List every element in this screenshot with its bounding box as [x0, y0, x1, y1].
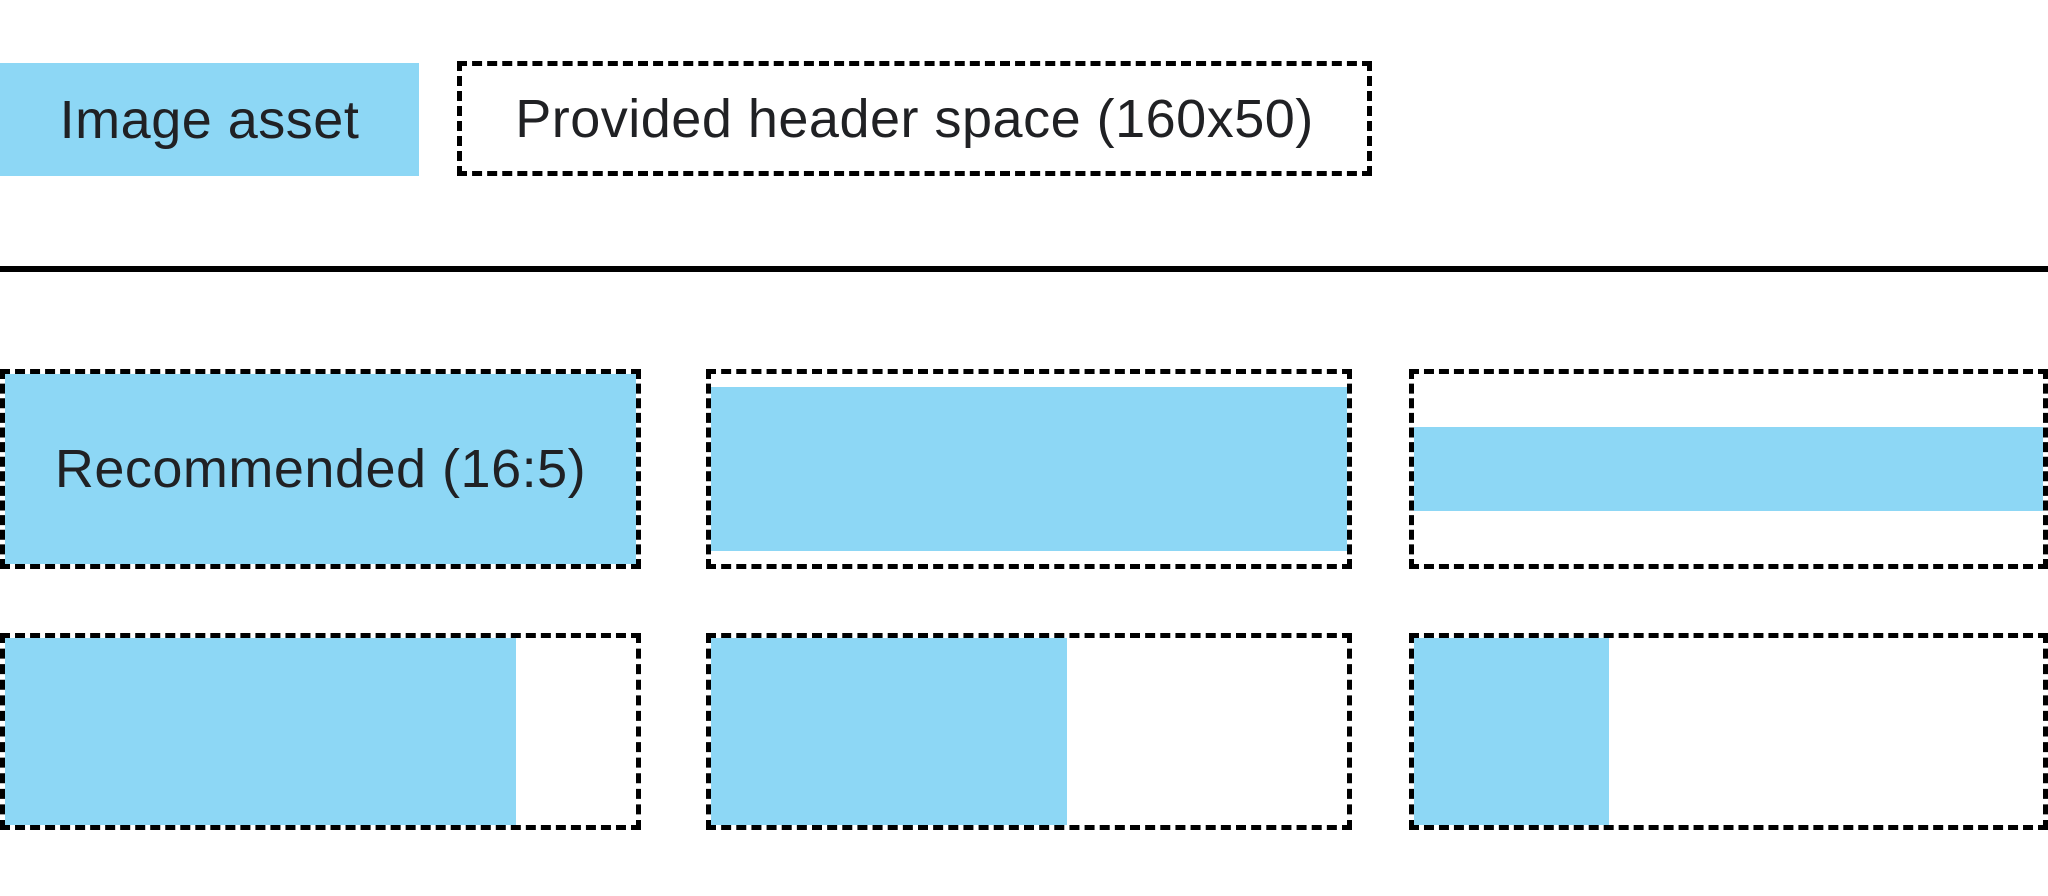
image-asset-guidelines-diagram: Image asset Provided header space (160x5…: [0, 0, 2048, 896]
legend-image-asset-label: Image asset: [60, 93, 360, 147]
example-box-recommended: Recommended (16:5): [0, 369, 641, 569]
example-box-medium-asset: [706, 633, 1352, 830]
legend-header-space-box: Provided header space (160x50): [457, 61, 1372, 176]
image-asset-fill-thin-banner: [1414, 427, 2043, 511]
example-box-narrow-asset: [1409, 633, 2048, 830]
recommended-label: Recommended (16:5): [55, 442, 586, 496]
image-asset-fill-medium: [711, 638, 1067, 825]
section-divider: [0, 266, 2048, 272]
example-box-letterboxed: [706, 369, 1352, 569]
image-asset-fill-recommended: Recommended (16:5): [5, 374, 636, 564]
example-box-wide-asset: [0, 633, 641, 830]
legend-header-space-label: Provided header space (160x50): [515, 92, 1314, 146]
example-box-thin-banner: [1409, 369, 2048, 569]
image-asset-fill-wide: [5, 638, 516, 825]
image-asset-fill-narrow: [1414, 638, 1609, 825]
legend-image-asset-swatch: Image asset: [0, 63, 419, 176]
image-asset-fill-letterboxed: [711, 387, 1347, 550]
